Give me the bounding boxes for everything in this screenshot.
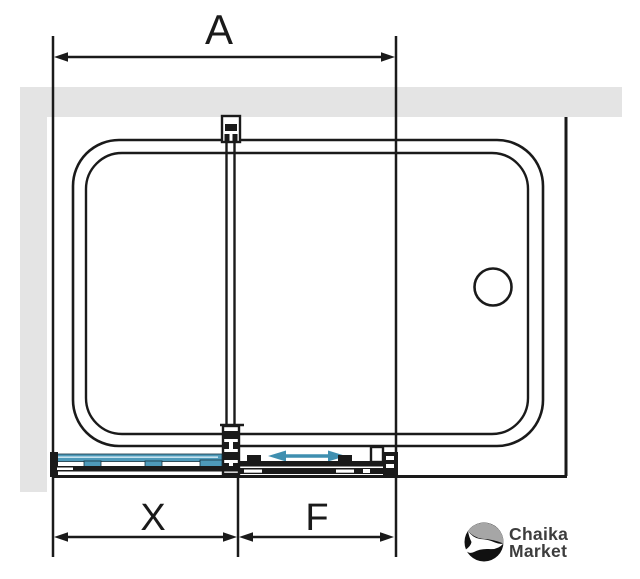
track-end-profile xyxy=(383,452,398,475)
diagram-canvas xyxy=(0,0,640,579)
sliding-panel-track xyxy=(52,466,238,472)
dimension-a xyxy=(54,52,395,62)
wall-top xyxy=(20,87,622,117)
fixed-panel-edge xyxy=(227,143,235,452)
dimension-label-total-width: A xyxy=(197,9,241,51)
dimension-label-fixed-panel: F xyxy=(295,499,339,537)
dimension-f-arrowhead-right xyxy=(380,532,394,542)
bathtub-screen-installation-diagram: A X F Chaika Market xyxy=(0,0,640,579)
dimension-a-arrowhead-left xyxy=(54,52,68,62)
seagull-circle-icon xyxy=(465,523,504,562)
dimension-x-arrowhead-right xyxy=(223,532,237,542)
track-knob xyxy=(371,447,383,462)
dimension-label-sliding-panel: X xyxy=(131,499,175,537)
dimension-x-arrowhead-left xyxy=(54,532,68,542)
wall-left xyxy=(20,87,47,492)
slide-direction-arrow-icon xyxy=(268,451,346,462)
bathtub xyxy=(73,140,543,446)
top-mount-bracket xyxy=(222,116,240,142)
logo-wordmark-line2: Market xyxy=(509,543,568,560)
dimension-f-arrowhead-left xyxy=(239,532,253,542)
drain-circle xyxy=(475,269,512,306)
left-wall-profile xyxy=(50,452,58,477)
dimension-a-arrowhead-right xyxy=(381,52,395,62)
bathtub-outer-rim xyxy=(73,140,543,446)
logo-wordmark: Chaika Market xyxy=(509,526,568,560)
bathtub-inner-rim xyxy=(86,153,528,434)
